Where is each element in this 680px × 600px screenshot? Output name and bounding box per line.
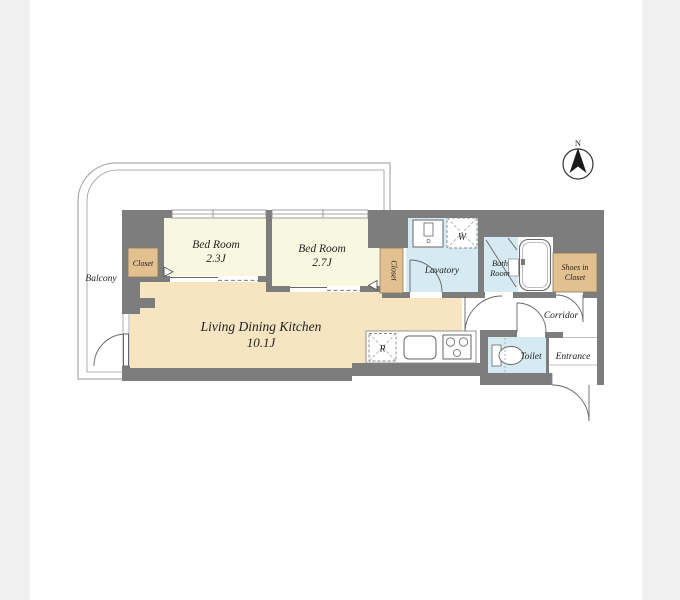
- bedroom2-label: Bed Room: [298, 243, 346, 255]
- ldk-corridor-door-arc: [465, 296, 502, 333]
- stove-burner-3: [454, 350, 461, 357]
- shoes-closet-label-line2: Closet: [565, 273, 586, 282]
- compass: N: [563, 138, 593, 179]
- bedroom1-label: Bed Room: [192, 239, 240, 251]
- ldk-size: 10.1J: [247, 335, 277, 350]
- stove-burner-1: [446, 338, 454, 346]
- wall-under-closet1: [122, 277, 164, 282]
- entrance-label: Entrance: [555, 352, 591, 362]
- toilet-label: Toilet: [520, 352, 542, 362]
- wall-band-3: [513, 292, 556, 298]
- wall-toilet-left: [480, 330, 488, 376]
- wall-closet1-right: [158, 248, 164, 277]
- closet-bedroom2-label: Closet: [390, 260, 399, 281]
- wall-bottom-left: [122, 368, 352, 381]
- wall-toilet-top: [488, 330, 517, 337]
- refrigerator-label: R: [379, 345, 386, 355]
- wall-above-closet2: [368, 210, 408, 248]
- wall-above-bath: [484, 210, 553, 237]
- balcony-label: Balcony: [85, 274, 117, 284]
- front-door-arc: [552, 385, 589, 421]
- lavatory-faucet: [424, 223, 433, 236]
- bedroom2-sliding-opening: [290, 286, 360, 292]
- ldk-label: Living Dining Kitchen: [200, 319, 322, 334]
- bath-counter: [509, 259, 519, 276]
- bedroom1-size: 2.3J: [206, 253, 226, 265]
- bathroom-label-line2: Room: [489, 268, 510, 278]
- wall-band-2: [442, 292, 485, 298]
- wall-left-block: [122, 210, 164, 248]
- wall-toilet-entrance: [546, 337, 549, 373]
- wall-band-4: [583, 292, 597, 298]
- bathtub-drain: [521, 259, 525, 265]
- balcony-door-leaf: [124, 334, 129, 366]
- wall-lavatory-bath: [478, 218, 484, 298]
- balcony-door-arc: [94, 334, 126, 366]
- wall-left-stub: [128, 298, 155, 308]
- front-door-opening: [552, 373, 597, 385]
- wall-bottom-mid: [352, 363, 480, 376]
- corridor-label: Corridor: [544, 311, 579, 321]
- wall-corridor-entrance: [545, 332, 563, 338]
- stove-burner-2: [459, 338, 467, 346]
- shoes-closet-label-line1: Shoes in: [562, 263, 589, 272]
- bedroom1-sliding-opening: [170, 276, 258, 282]
- closet-bedroom1-label: Closet: [133, 259, 154, 268]
- wall-top-right-block: [553, 210, 604, 253]
- compass-north-label: N: [575, 138, 581, 148]
- lavatory-label: Lavatory: [424, 266, 460, 276]
- bedroom2-size: 2.7J: [312, 257, 332, 269]
- bathroom-label-line1: Bath: [492, 258, 508, 268]
- toilet-door-arc: [517, 303, 546, 332]
- floorplan-page: N Bed Room 2.3J Bed Room 2.7J Living Din…: [0, 0, 680, 600]
- kitchen-sink: [404, 336, 436, 359]
- wall-closet1-left: [122, 248, 128, 277]
- floorplan-drawing: N Bed Room 2.3J Bed Room 2.7J Living Din…: [0, 0, 680, 600]
